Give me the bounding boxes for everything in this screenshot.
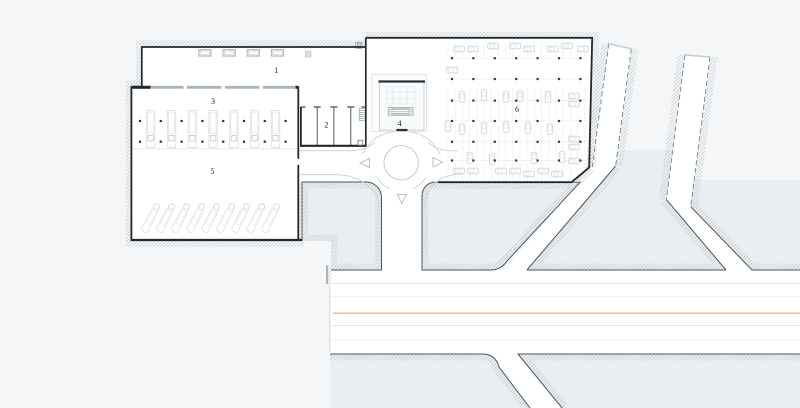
svg-text:5: 5	[211, 167, 215, 176]
svg-text:1: 1	[275, 66, 279, 75]
svg-text:4: 4	[398, 119, 402, 128]
svg-text:3: 3	[211, 97, 215, 106]
svg-text:6: 6	[515, 105, 519, 114]
svg-text:2: 2	[324, 121, 328, 130]
